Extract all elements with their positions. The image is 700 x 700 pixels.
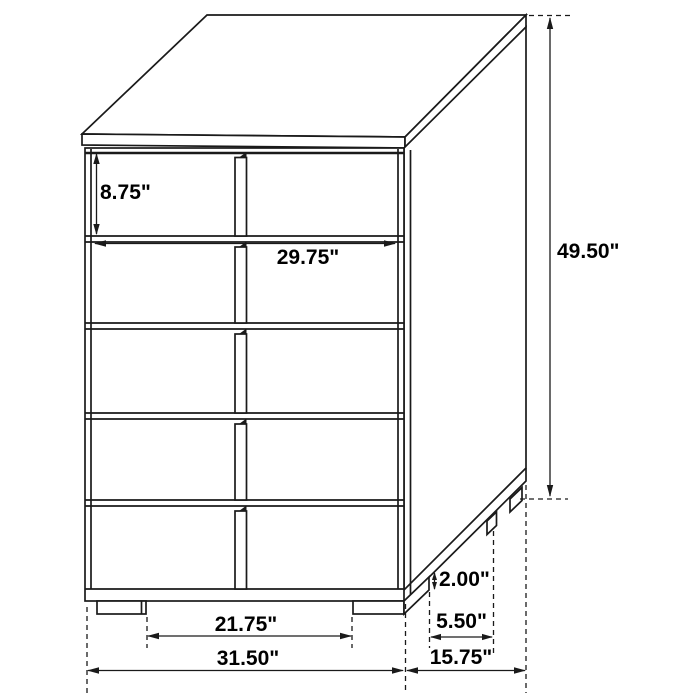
arrow-right bbox=[392, 667, 404, 673]
handle-row-1 bbox=[235, 158, 247, 237]
dim-label-drawer-width: 29.75" bbox=[277, 246, 340, 269]
dim-overall-height: 49.50" bbox=[520, 16, 620, 500]
handle-row-2 bbox=[235, 247, 247, 323]
arrow-left bbox=[430, 634, 441, 640]
handle-row-3 bbox=[235, 334, 247, 413]
dim-label-top-drawer-height: 8.75" bbox=[100, 181, 151, 204]
dim-label-front-foot-spacing: 21.75" bbox=[215, 613, 278, 636]
arrow-right bbox=[340, 633, 352, 639]
arrow-up bbox=[547, 17, 553, 29]
front-left-foot bbox=[97, 601, 146, 614]
dim-label-side-foot-spacing: 5.50" bbox=[436, 610, 487, 633]
arrow-right bbox=[514, 667, 526, 673]
arrow-right bbox=[482, 634, 493, 640]
top-front-edge bbox=[82, 134, 405, 148]
chest-front bbox=[85, 148, 404, 601]
chest-dimension-drawing: 8.75" 29.75" 49.50" 2.00" 5.50" bbox=[0, 0, 700, 700]
arrow-left bbox=[147, 633, 159, 639]
dim-foot-height: 2.00" bbox=[432, 568, 490, 591]
arrow-left bbox=[406, 667, 418, 673]
handle-row-4 bbox=[235, 424, 247, 500]
dim-label-overall-width: 31.50" bbox=[217, 647, 280, 670]
drawer-center-handles bbox=[235, 152, 247, 589]
arrow-down bbox=[432, 582, 437, 590]
side-foot-middle bbox=[487, 512, 497, 535]
dim-label-depth: 15.75" bbox=[430, 646, 493, 669]
dim-label-overall-height: 49.50" bbox=[557, 240, 620, 263]
arrow-left bbox=[87, 667, 99, 673]
arrow-down bbox=[547, 485, 553, 497]
handle-row-5 bbox=[235, 511, 247, 589]
dim-front-foot-spacing: 21.75" bbox=[147, 613, 352, 648]
dim-label-foot-height: 2.00" bbox=[439, 568, 490, 591]
front-right-foot bbox=[353, 601, 404, 614]
dimension-diagram: 8.75" 29.75" 49.50" 2.00" 5.50" bbox=[0, 0, 700, 700]
